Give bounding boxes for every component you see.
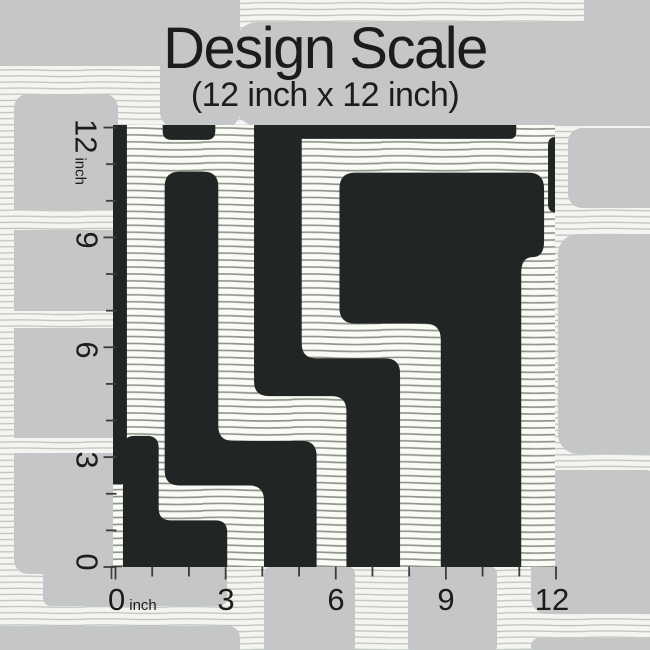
pattern-center-step-bar (254, 125, 400, 567)
left-ruler-value: 3 (70, 451, 105, 468)
left-ruler-value: 9 (70, 231, 105, 248)
pattern-top-strip (255, 125, 516, 139)
swatch-base (113, 125, 555, 567)
pattern-bottom-left-foot (123, 436, 227, 567)
pattern-right-edge-sliver (548, 137, 555, 212)
pattern-left-step-bar (165, 172, 317, 567)
left-ruler-label-0: 0 (72, 553, 103, 570)
left-ruler-label-6: 6 (72, 341, 103, 358)
bottom-ruler-value: 3 (217, 582, 234, 617)
swatch-stripes (113, 125, 555, 567)
bottom-ruler-label-0: 0inch (108, 584, 157, 615)
page-title: Design Scale (0, 20, 650, 78)
pattern-top-left-tab (163, 125, 216, 140)
bottom-ruler-label-6: 6 (327, 584, 344, 615)
page-subtitle: (12 inch x 12 inch) (0, 78, 650, 112)
left-ruler-label-12: 12inch (71, 119, 102, 185)
left-ruler-unit: inch (72, 157, 89, 185)
left-ruler-value: 12 (69, 119, 104, 153)
pattern-left-edge-bar (113, 125, 127, 485)
pattern-big-block-with-tail (339, 173, 544, 567)
bottom-ruler-value: 9 (437, 582, 454, 617)
bottom-ruler-label-9: 9 (437, 584, 454, 615)
left-ruler-label-9: 9 (72, 231, 103, 248)
left-ruler-value: 6 (70, 341, 105, 358)
bottom-ruler-label-3: 3 (217, 584, 234, 615)
left-ruler-label-3: 3 (72, 451, 103, 468)
tick-marks (104, 128, 557, 580)
swatch-pattern-shapes (113, 125, 555, 567)
bottom-ruler-value: 0 (108, 582, 125, 617)
origin-corner-bracket (112, 567, 123, 580)
bottom-ruler-value: 6 (327, 582, 344, 617)
bottom-ruler-value: 12 (535, 582, 569, 617)
bottom-ruler-label-12: 12 (535, 584, 569, 615)
design-scale-product-image: Design Scale (12 inch x 12 inch) 12inch … (0, 0, 650, 650)
left-ruler-value: 0 (70, 553, 105, 570)
bottom-ruler-unit: inch (129, 597, 157, 614)
design-swatch (113, 125, 555, 567)
